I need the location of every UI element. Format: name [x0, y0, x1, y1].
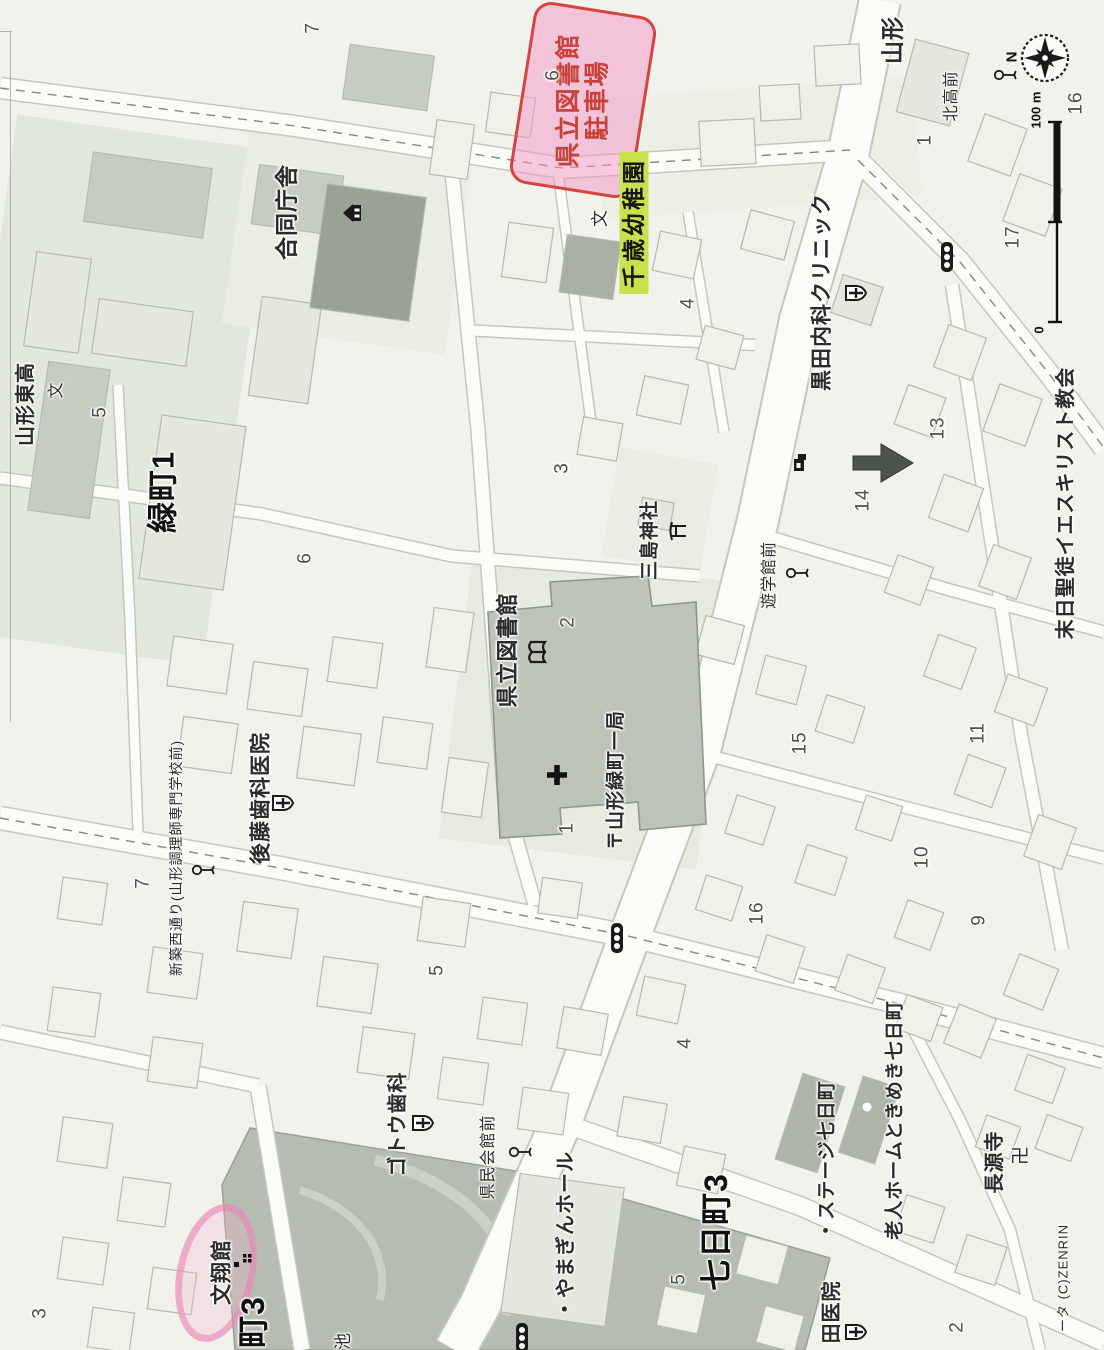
block-number: 3 — [553, 462, 572, 474]
scanned-zenrin-map: 県立図書館 駐車場 千歳幼稚園 N 100 m 0 合同庁舎緑町1山形東高文山形… — [0, 0, 1104, 1350]
map-label: 池 — [335, 1332, 352, 1350]
map-label: ・やまぎんホール — [556, 1151, 576, 1319]
compass-north-label: N — [1004, 52, 1021, 63]
block-number: 5 — [670, 1273, 689, 1285]
block-number: 2 — [559, 616, 578, 628]
scale-top-label: 100 m — [1029, 92, 1044, 129]
block-number: 15 — [791, 731, 810, 754]
map-label: 七日町3 — [700, 1173, 732, 1291]
map-label: 長源寺 — [985, 1131, 1005, 1194]
map-label: 山形東高 — [16, 362, 36, 446]
map-label: 黒田内科クリニック — [812, 193, 833, 391]
map-label: 文翔館 — [212, 1239, 233, 1305]
map-label: ・ステージ七日町 — [818, 1080, 837, 1240]
block-number: 7 — [134, 877, 153, 889]
block-number: 4 — [679, 297, 698, 309]
map-label: 後藤歯科医院 — [251, 732, 272, 864]
map-label: 卍 — [1012, 1145, 1031, 1165]
block-number: 11 — [969, 722, 988, 744]
map-label: 山形 — [882, 16, 905, 64]
block-number: 9 — [970, 914, 989, 926]
block-number: 1 — [558, 822, 577, 834]
map-label: 合同庁舎 — [276, 164, 299, 260]
map-label: ータ (C)ZENRIN — [1057, 1224, 1070, 1332]
map-label: ゴトウ歯科 — [388, 1072, 408, 1177]
block-number: 2 — [948, 1321, 967, 1333]
block-number: 16 — [1067, 91, 1086, 114]
map-label: 〒山形緑町一局 — [607, 710, 626, 850]
map-label: 町3 — [237, 1296, 269, 1348]
map-label: 県立図書館 — [497, 592, 519, 707]
map-label: 文 — [49, 381, 65, 398]
block-number: 16 — [748, 901, 767, 924]
block-number: 13 — [929, 416, 948, 439]
block-number: 5 — [428, 964, 447, 976]
block-number: 10 — [913, 845, 932, 868]
block-number: 17 — [1004, 225, 1023, 248]
map-label: 田医院 — [822, 1281, 842, 1344]
block-number: 14 — [854, 488, 873, 511]
block-number: 5 — [91, 406, 110, 418]
scale-zero-label: 0 — [1032, 326, 1047, 333]
map-label: 県民会館前 — [481, 1114, 497, 1199]
block-number: 7 — [304, 22, 323, 34]
map-label: 遊学館前 — [762, 541, 778, 609]
map-label: 三島神社 — [641, 500, 660, 580]
map-label: 末日聖徒イエスキリスト教会 — [1056, 367, 1076, 640]
block-number: 6 — [296, 552, 315, 564]
map-label: 新築西通り(山形調理師専門学校前) — [169, 740, 183, 976]
block-number: 4 — [676, 1037, 695, 1049]
block-number: 1 — [916, 134, 935, 146]
map-label: 文 — [592, 209, 609, 227]
map-label: 緑町1 — [148, 451, 179, 533]
block-number: 3 — [31, 1307, 50, 1319]
block-number: 6 — [544, 69, 563, 81]
map-label: 北高前 — [944, 70, 960, 121]
labels-layer: N 100 m 0 合同庁舎緑町1山形東高文山形北高前黒田内科クリニック三島神社… — [0, 0, 1104, 1350]
map-label: 老人ホームときめき七日町 — [886, 1000, 905, 1239]
